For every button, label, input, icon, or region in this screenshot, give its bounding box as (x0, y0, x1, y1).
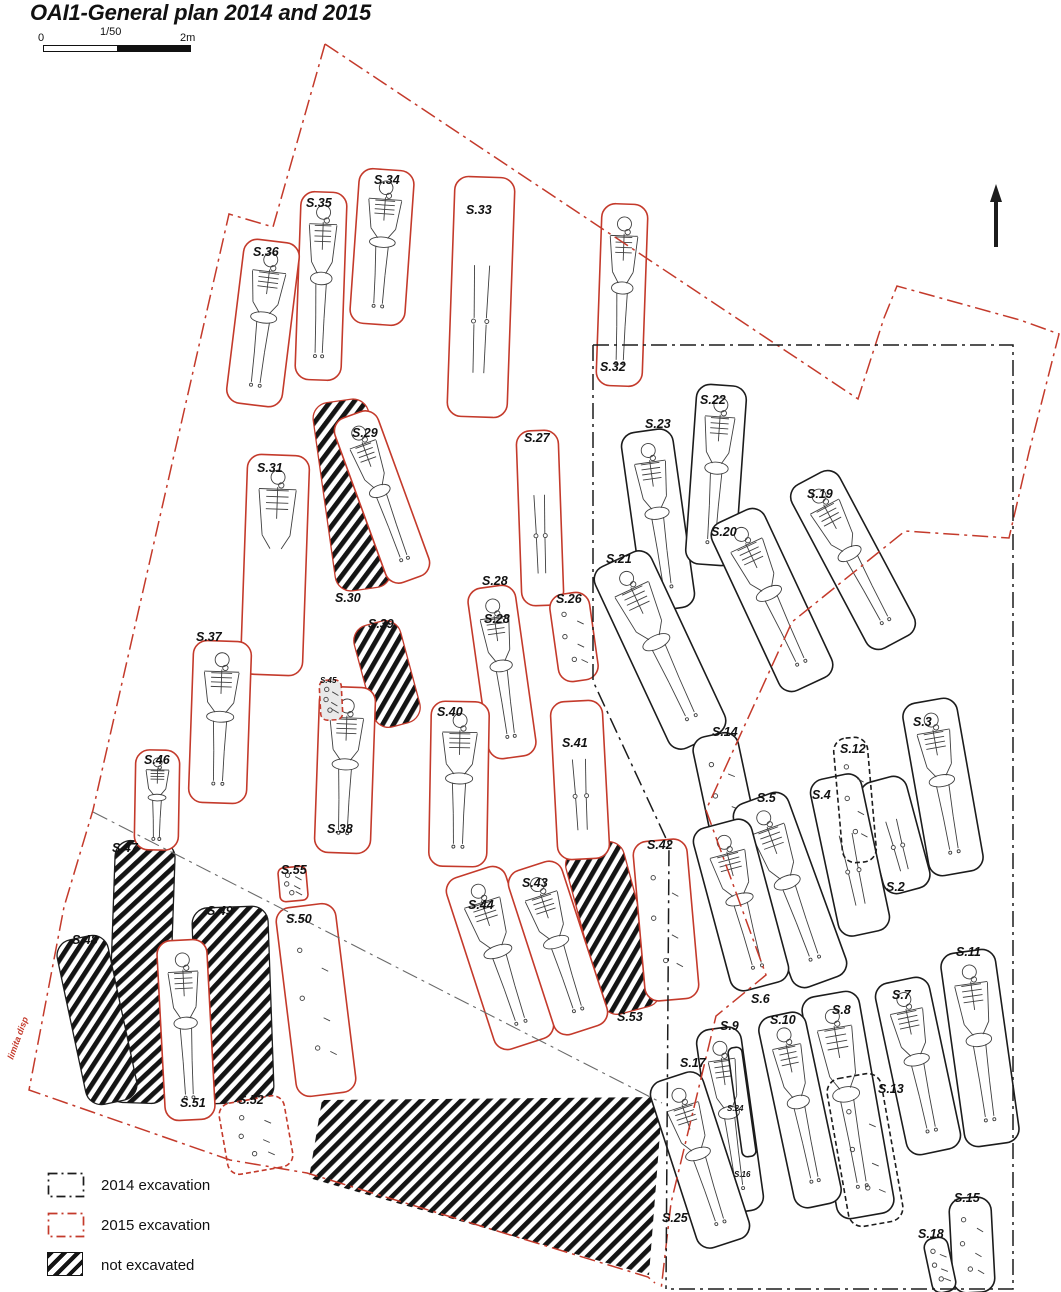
label-s13: S.13 (878, 1082, 904, 1096)
grave-s21 (590, 546, 731, 753)
label-s11: S.11 (956, 945, 981, 959)
label-s2: S.2 (886, 880, 905, 894)
label-s37: S.37 (196, 630, 223, 644)
label-s44: S.44 (468, 898, 494, 912)
label-s39: S.39 (368, 617, 394, 631)
legend-swatch-not-excavated (47, 1252, 85, 1278)
label-s45: S.45 (320, 676, 337, 685)
label-s22: S.22 (700, 393, 726, 407)
label-s7: S.7 (892, 988, 912, 1002)
grave-s27 (516, 430, 564, 606)
label-s16: S.16 (734, 1170, 751, 1179)
label-s9: S.9 (720, 1019, 739, 1033)
legend-item-excavation-2014: 2014 excavation (47, 1170, 307, 1200)
label-s20: S.20 (711, 525, 737, 539)
label-s12: S.12 (840, 742, 866, 756)
label-s30: S.30 (335, 591, 361, 605)
label-s53: S.53 (617, 1010, 643, 1024)
label-s5: S.5 (757, 791, 777, 805)
label-s46: S.46 (144, 753, 171, 767)
label-s51: S.51 (180, 1096, 206, 1110)
label-s43: S.43 (522, 876, 548, 890)
legend-label-excavation-2014: 2014 excavation (101, 1177, 210, 1194)
legend-item-not-excavated: not excavated (47, 1250, 307, 1280)
label-s52: S.52 (238, 1093, 264, 1107)
label-s38: S.38 (327, 822, 353, 836)
label-s4: S.4 (812, 788, 831, 802)
label-s28: S.28 (482, 574, 508, 588)
grave-s51 (156, 939, 215, 1121)
legend: 2014 excavation2015 excavationnot excava… (47, 1170, 307, 1290)
legend-item-excavation-2015: 2015 excavation (47, 1210, 307, 1240)
grave-s40 (429, 701, 490, 867)
label-s29: S.29 (352, 426, 378, 440)
grave-s50 (275, 902, 358, 1098)
label-s31: S.31 (257, 461, 283, 475)
label-s55: S.55 (281, 863, 308, 877)
label-s24: S.24 (727, 1104, 744, 1113)
label-s35: S.35 (306, 196, 333, 210)
grave-s37 (188, 640, 252, 804)
label-s3: S.3 (913, 715, 932, 729)
label-s48: S.48 (72, 933, 98, 947)
label-s26: S.26 (556, 592, 583, 606)
label-s14: S.14 (712, 725, 738, 739)
label-s25: S.25 (662, 1211, 689, 1225)
label-s19: S.19 (807, 487, 833, 501)
label-s8: S.8 (832, 1003, 851, 1017)
label-s23: S.23 (645, 417, 671, 431)
label-s21: S.21 (606, 552, 632, 566)
grave-s41 (550, 700, 610, 861)
label-s50: S.50 (286, 912, 312, 926)
label-s27: S.27 (524, 431, 551, 445)
label-s15: S.15 (954, 1191, 981, 1205)
label-s41: S.41 (562, 736, 588, 750)
legend-swatch-excavation-2015 (47, 1212, 85, 1238)
label-s47: S.47 (112, 841, 139, 855)
grave-s34 (349, 168, 415, 326)
label-extra-0: S.28 (484, 612, 510, 626)
grave-s31 (240, 454, 310, 676)
legend-label-not-excavated: not excavated (101, 1257, 194, 1274)
excavation-plan: OAI1-General plan 2014 and 2015 0 1/50 2… (0, 0, 1061, 1292)
label-s32: S.32 (600, 360, 626, 374)
north-arrow-icon (990, 184, 1002, 247)
label-s6: S.6 (751, 992, 771, 1006)
grave-s36 (225, 238, 301, 409)
label-s49: S.49 (207, 904, 233, 918)
label-s18: S.18 (918, 1227, 944, 1241)
label-s36: S.36 (253, 245, 280, 259)
label-s42: S.42 (647, 838, 673, 852)
grave-s45 (319, 679, 343, 720)
label-s10: S.10 (770, 1013, 796, 1027)
label-s34: S.34 (374, 173, 400, 187)
grave-s35 (295, 191, 348, 380)
hatched-area-south-area (309, 1097, 661, 1275)
label-s33: S.33 (466, 203, 492, 217)
site-plan-svg: S.33S.34S.35S.36S.32S.31S.29S.27S.28S.26… (0, 0, 1061, 1292)
label-s40: S.40 (437, 705, 463, 719)
label-s17: S.17 (680, 1056, 707, 1070)
legend-label-excavation-2015: 2015 excavation (101, 1217, 210, 1234)
boundary-note: limita disp (5, 1015, 30, 1061)
legend-swatch-excavation-2014 (47, 1172, 85, 1198)
